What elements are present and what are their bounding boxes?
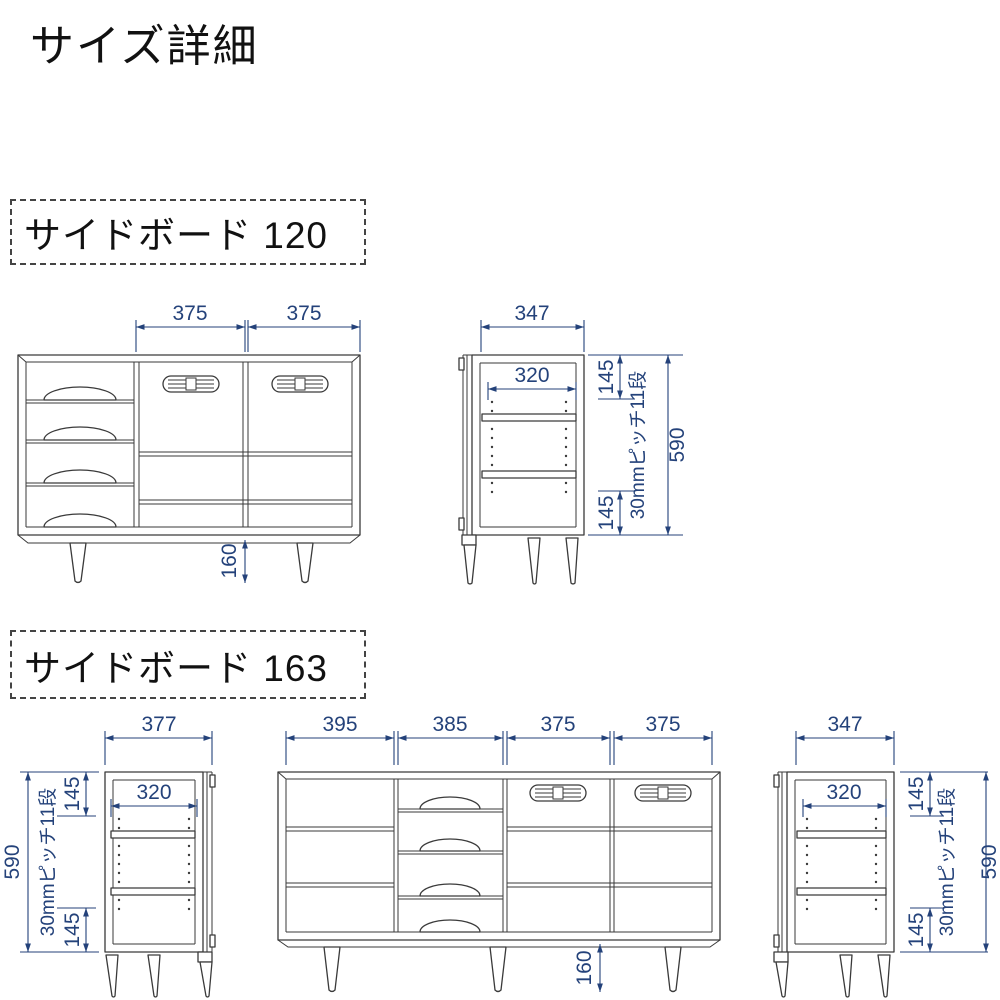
dim-height: 590 (978, 844, 1000, 879)
page-title: サイズ詳細 (30, 10, 259, 74)
drawer-handle-arc (420, 839, 480, 851)
dim-height: 590 (666, 427, 689, 462)
shelf-board (482, 414, 576, 421)
sb163-leg-dimension: 160 (573, 944, 600, 992)
dim-leg-height: 160 (218, 543, 241, 578)
dim-bottom-offset: 145 (905, 912, 928, 947)
sb163-right-dimensions-top: 347 (796, 713, 894, 765)
front-leg (490, 947, 506, 992)
dim-inner-depth: 320 (826, 781, 861, 804)
section-label-sideboard-120: サイドボード 120 (10, 199, 366, 265)
front-leg (665, 947, 681, 992)
side-leg (464, 545, 476, 584)
leg-block (462, 535, 476, 545)
side-leg (200, 962, 212, 997)
shelf-board (797, 831, 886, 838)
side-leg (106, 955, 118, 997)
dim-depth: 377 (141, 713, 176, 736)
hinge (774, 775, 779, 787)
dim-top-offset: 145 (905, 776, 928, 811)
drawer-handle-arc (420, 797, 480, 809)
dim-bay-3: 375 (540, 713, 575, 736)
drawer-handle-arc (44, 387, 116, 400)
sb120-side-dimensions-right: 145 145 30mmピッチ11段 590 (588, 355, 689, 535)
door-handle-left (530, 785, 586, 801)
sb163-front-cabinet (278, 772, 720, 992)
door-handle-right (635, 785, 691, 801)
front-leg (297, 543, 313, 583)
hinge (774, 935, 779, 947)
side-leg (566, 538, 578, 584)
sb120-drawer-stack (26, 387, 134, 527)
sideboard-163-label: サイドボード 163 (24, 638, 328, 692)
sb163-front-view: 395 385 375 375 (268, 703, 746, 1000)
size-detail-diagram: サイズ詳細 サイドボード 120 375 375 (0, 0, 1000, 1000)
leg-block (198, 952, 212, 962)
hinge (210, 935, 215, 947)
sb163-right-dimensions-right: 145 145 30mmピッチ11段 590 (900, 772, 1000, 952)
side-leg (148, 955, 160, 997)
sb163-left-side-view: 377 (2, 703, 254, 1000)
door-handle-left (163, 376, 219, 392)
dim-inner-depth: 320 (514, 364, 549, 387)
front-leg (70, 543, 86, 583)
dim-shelf-pitch: 30mmピッチ11段 (37, 788, 59, 937)
dim-depth: 347 (514, 302, 549, 325)
drawer-handle-arc (44, 427, 116, 440)
dim-shelf-pitch: 30mmピッチ11段 (936, 788, 958, 937)
hinge (459, 518, 464, 530)
door-handle-right (272, 376, 328, 392)
dim-bay-1: 395 (322, 713, 357, 736)
sb120-side-view: 347 (448, 292, 698, 600)
leg-block (774, 952, 788, 962)
sb163-left-dimensions-top: 377 (105, 713, 212, 765)
hinge (210, 775, 215, 787)
sb120-side-dimensions-top: 347 (481, 302, 584, 352)
dim-door-width-left: 375 (172, 302, 207, 325)
side-leg (776, 962, 788, 997)
dim-top-offset: 145 (595, 359, 618, 394)
drawer-handle-arc (420, 920, 480, 932)
dim-depth: 347 (827, 713, 862, 736)
front-leg (324, 947, 340, 992)
drawer-handle-arc (420, 884, 480, 896)
dim-door-width-right: 375 (286, 302, 321, 325)
drawer-handle-arc (44, 514, 116, 527)
sb120-front-view: 375 375 (8, 292, 388, 600)
sb163-front-dimensions: 395 385 375 375 (286, 713, 712, 765)
side-leg (528, 538, 540, 584)
drawer-handle-arc (44, 470, 116, 483)
shelf-board (111, 831, 195, 838)
dim-inner-depth: 320 (136, 781, 171, 804)
sb120-leg-dimension: 160 (218, 540, 245, 583)
sb163-drawer-stack (398, 797, 503, 932)
sb120-front-cabinet (18, 355, 360, 583)
dim-shelf-pitch: 30mmピッチ11段 (627, 371, 649, 520)
sb163-right-side-view: 347 (754, 703, 1000, 1000)
shelf-board (482, 471, 576, 478)
sb163-left-dimensions-left: 145 145 30mmピッチ11段 590 (1, 772, 99, 952)
sideboard-120-label: サイドボード 120 (24, 205, 328, 259)
dim-bottom-offset: 145 (61, 912, 84, 947)
side-leg (840, 955, 852, 997)
dim-leg-height: 160 (573, 950, 596, 985)
dim-bay-2: 385 (432, 713, 467, 736)
sb120-front-dimensions: 375 375 (136, 302, 360, 352)
dim-height: 590 (1, 844, 24, 879)
side-leg (878, 955, 890, 997)
dim-bay-4: 375 (645, 713, 680, 736)
shelf-board (797, 888, 886, 895)
sb120-side-inner-dimension: 320 (488, 364, 576, 400)
shelf-board (111, 888, 195, 895)
sb163-right-inner-dimension: 320 (803, 781, 886, 817)
section-label-sideboard-163: サイドボード 163 (10, 630, 366, 699)
dim-top-offset: 145 (61, 776, 84, 811)
sb163-left-inner-dimension: 320 (111, 781, 197, 817)
hinge (459, 358, 464, 370)
dim-bottom-offset: 145 (595, 495, 618, 530)
